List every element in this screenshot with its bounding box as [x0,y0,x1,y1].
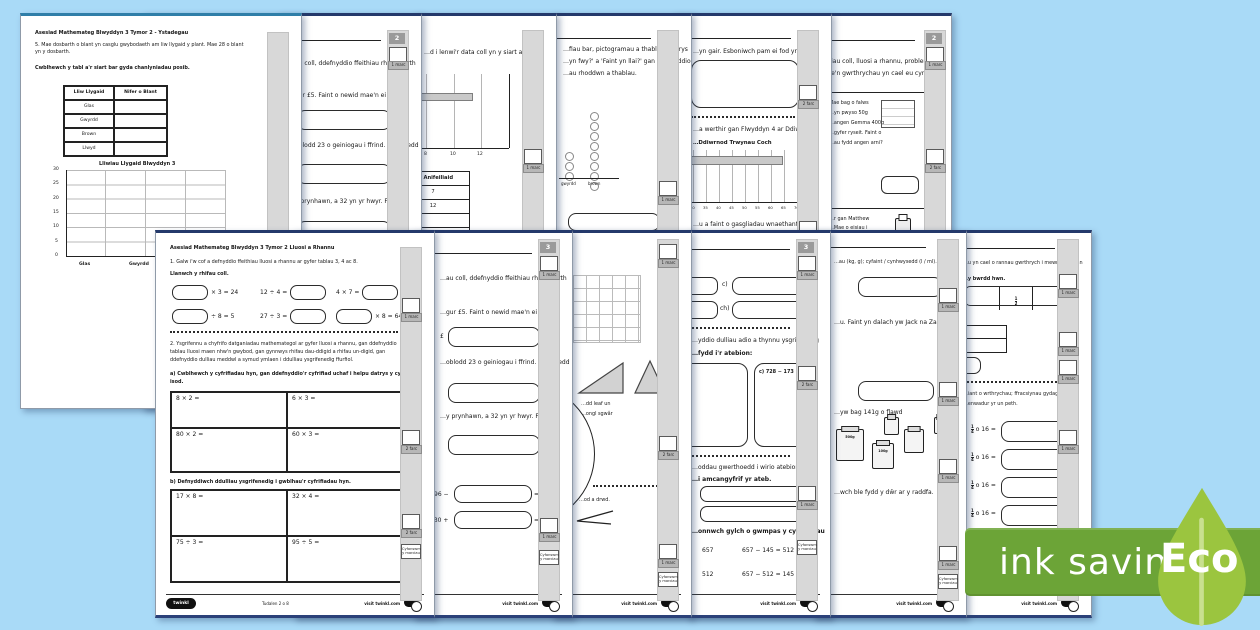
problem-text: Mae bag o falws [829,100,869,106]
eco-stamp-icon [549,601,560,612]
equation-text: 657 [702,547,713,554]
x-tick: 40 [716,205,721,210]
mark-label: 2 farc [797,381,818,390]
mark-label: 1 marc [797,501,818,510]
visit-link-label: visit twinkl.com [1021,601,1057,606]
mark-scheme-margin: 1 marc 1 marc 1 marc 1 marc Cyfanswm y m… [937,239,959,601]
pictogram-baseline [559,178,619,179]
table-cell: Brown [64,128,114,142]
mark-box [799,85,817,100]
total-marks-label: y marciau [939,581,957,585]
question-text: 1. Galw i'w cof a defnyddio ffeithiau ll… [170,259,358,265]
mark-label: 2 farc [401,445,422,454]
x-tick: 65 [781,205,786,210]
table-cell [114,100,167,114]
fraction-question-text: o 16 = [976,454,996,461]
page-number-badge: 3 [540,242,556,253]
equation-text: 657 − 512 = 145 [742,571,794,578]
equation-text: × 8 = 64 [375,313,402,320]
square-grid [573,275,641,343]
table-cell [114,142,167,156]
mark-label: 1 marc [938,397,959,406]
total-marks-label: y marciau [659,579,677,583]
table-cell [114,128,167,142]
visit-link-label: visit twinkl.com [760,601,796,606]
mark-scheme-margin: 3 1 marc 1 marc Cyfanswm y marciau [538,239,560,601]
chart-gridline [481,74,482,148]
mark-box [939,459,957,474]
eco-stamp-icon [1068,601,1079,612]
mark-box [659,181,677,196]
question-fragment: …fiau coll, lluosi a rhannu, problemau [823,58,937,65]
answer-box [568,213,660,231]
working-box-label: c) 728 − 173 = [759,369,800,375]
worksheet-page-multiply-divide: Asesiad Mathemateg Blwyddyn 3 Tymor 2 Ll… [155,230,435,618]
equation-text: 27 ÷ 3 = [260,313,287,320]
mark-label: 1 marc [1058,347,1079,356]
question-fragment: …au rhoddwn a thablau. [563,70,637,77]
pictogram-label: brown [588,181,600,186]
total-marks-box: Cyfanswm y marciau [658,572,678,587]
eco-stamp-icon [807,601,818,612]
pictogram-icon [590,162,599,171]
pictogram-icon [590,142,599,151]
x-tick: 12 [477,152,483,157]
y-tick: 30 [53,167,59,172]
mark-box [540,518,558,533]
dotted-separator [963,381,1061,383]
mark-box [540,256,558,271]
table-cell: 75 ÷ 3 = [171,536,287,582]
dotted-separator [688,455,790,457]
answer-box [858,381,934,401]
pictogram-label: gwyrdd [561,181,576,186]
question-fragment: …i amcangyfrif yr ateb. [692,476,771,483]
y-tick: 10 [53,224,59,229]
mark-box [1059,430,1077,445]
mark-label: 1 marc [523,164,544,173]
mark-box [939,382,957,397]
chart-y-axis [66,170,67,256]
page-header: Asesiad Mathemateg Blwyddyn 3 Tymor 2 Ll… [170,245,334,252]
resource-preview: Asesiad Mathemateg Blwyddyn 3 Tymor 2 - … [0,0,1260,630]
table-cell: 32 × 4 = [287,490,403,536]
equation-text: 657 − 145 = 512 [742,547,794,554]
chart-gridline [426,74,427,148]
total-marks-label: y marciau [402,551,420,555]
mark-label: 1 marc [388,61,409,70]
mark-label: 1 marc [658,196,679,205]
pictogram-icon [565,172,574,181]
equation: 12 ÷ 4 = [260,285,326,300]
mark-label: 2 farc [658,451,679,460]
mark-label: 1 marc [539,271,560,280]
pictogram-icon [590,172,599,181]
calculation-table-b: 17 × 8 = 32 × 4 = 75 ÷ 3 = 95 ÷ 5 = [170,489,404,583]
mark-box [1059,332,1077,347]
instruction-text: Llanwch y rhifau coll. [170,271,229,277]
x-tick: 8 [424,152,427,157]
jar-icon: 100g [872,443,894,469]
eco-stamp-icon [943,601,954,612]
pictogram-column [590,112,599,192]
instruction-text: Cwblhewch y tabl a'r siart bar gyda chan… [35,65,190,71]
fraction-question-text: o 16 = [976,426,996,433]
dotted-separator [691,116,795,118]
equation: ÷ 8 = 5 [172,309,234,324]
mark-box [389,47,407,62]
table-cell: 60 × 3 = [287,428,403,472]
mark-box [402,430,420,445]
question-text: yn y dosbarth. [35,49,70,55]
page-footer: twinkl Tudalen 2 o 8 visit twinkl.com [166,594,424,610]
triangle-shapes [577,357,669,395]
answer-box [448,435,540,455]
equation: 4 × 7 = [336,285,398,300]
mark-label: 1 marc [925,61,946,70]
mark-box [1059,360,1077,375]
page-count-label: Tudalen 2 o 8 [262,601,289,606]
table-cell: 80 × 2 = [171,428,287,472]
instruction-text: b) Defnyddiwch ddulliau ysgrifenedig i g… [170,479,351,485]
fraction-bar: 12 [965,286,1067,306]
mark-scheme-margin: 3 1 marc 2 farc 1 marc Cyfanswm y marcia… [796,239,818,601]
answer-box [454,485,532,503]
y-tick: 20 [53,196,59,201]
question-text: 2. Ysgrifennu a chyfrifo datganiadau mat… [170,341,397,347]
missing-number-box [336,309,372,324]
question-text: 5. Mae dosbarth o blant yn casglu gwybod… [35,42,244,48]
total-marks-box: Cyfanswm y marciau [401,544,421,559]
fraction-question: 14 o 16 = [971,509,996,518]
jar-icon: 500g [836,429,864,461]
fraction-denominator: 4 [971,430,974,434]
missing-number-box [290,285,326,300]
mark-label: 1 marc [1058,445,1079,454]
answer-box-large [691,60,799,108]
mark-box [524,149,542,164]
mark-box [659,436,677,451]
mark-box [939,546,957,561]
pictogram-icon [590,122,599,131]
eye-colour-table: Lliw Llygaid Nifer o Blant Glas Gwyrdd B… [63,85,168,157]
mark-label: 2 farc [401,529,422,538]
right-triangle-icon [579,363,623,393]
answer-box [448,327,540,347]
dotted-separator [593,485,661,487]
problem-text: …angen Gemma 400g [829,120,884,126]
page-header: Asesiad Mathemateg Blwyddyn 3 Tymor 2 - … [35,30,188,37]
x-tick: 55 [755,205,760,210]
question-fragment: …u a faint o gasgliadau wnaethant eu [693,221,807,228]
total-marks-label: Cyfanswm [798,543,817,547]
total-marks-label: Cyfanswm [659,575,678,579]
mark-label: 1 marc [938,303,959,312]
calculation-table-a: 8 × 2 = 6 × 3 = 80 × 2 = 60 × 3 = [170,391,404,473]
total-marks-label: y marciau [798,547,816,551]
table-cell: 95 ÷ 5 = [287,536,403,582]
x-label: Gwyrdd [129,262,149,267]
question-fragment: …iant o wrthrychau; ffracsiynau gydag un [963,391,1066,397]
page-number-badge: 3 [798,242,814,253]
dotted-separator [688,327,790,329]
question-fragment: …au (kg, g); cyfaint / cynhwysedd (l / m… [834,259,937,265]
mark-box [798,486,816,501]
missing-number-box [172,309,208,324]
visit-link-label: visit twinkl.com [896,601,932,606]
question-fragment: …u. Faint yn dalach yw Jack na Zack? [834,319,947,326]
eco-label: Eco [1160,536,1239,582]
equation: 27 ÷ 3 = [260,309,326,324]
mark-scheme-margin [267,32,289,244]
mark-label: 1 marc [938,561,959,570]
y-tick: 0 [55,253,58,258]
mark-box [926,47,944,62]
fraction-bar-cell: 12 [999,287,1032,310]
fraction-denominator: 4 [971,458,974,462]
pictogram-icon [590,112,599,121]
jar-lid-icon [841,426,859,432]
page-number-badge: 2 [389,33,405,44]
visit-link-label: visit twinkl.com [364,601,400,606]
dotted-separator [170,331,398,333]
problem-text: …au fydd angen arni? [829,140,883,146]
answer-box [858,277,942,297]
mark-scheme-margin: 1 marc 2 farc 2 farc Cyfanswm y marciau [400,247,422,601]
answer-box [297,110,391,130]
mark-box [402,514,420,529]
fraction-question: 14 o 16 = [971,481,996,490]
jar-icon [884,417,899,435]
question-fragment: …ongl sgwâr [581,411,613,417]
marshmallow-pack-icon [881,100,915,128]
jar-icon [904,429,924,453]
mark-label: 1 marc [658,259,679,268]
x-tick: 60 [768,205,773,210]
pictogram-icon [565,162,574,171]
pictogram-icon [565,152,574,161]
y-tick: 25 [53,181,59,186]
jar-lid-icon [908,426,921,432]
equation-fragment: 96 − [434,491,449,498]
mark-label: 2 farc [798,100,819,109]
total-marks-label: y marciau [540,557,558,561]
fraction-question: 14 o 16 = [971,453,996,462]
mark-label: 1 marc [1058,375,1079,384]
currency-symbol: £ [440,333,444,340]
mark-scheme-margin: 1 marc 2 farc 1 marc Cyfanswm y marciau [657,239,679,601]
mark-box [798,366,816,381]
mark-box [659,244,677,259]
x-tick: 10 [450,152,456,157]
instruction-text: isod. [170,379,183,385]
jar-lid-icon [876,440,890,446]
table-header-cell: Nifer o Blant [114,86,167,100]
total-marks-box: Cyfanswm y marciau [539,550,559,565]
question-fragment: …yn gair. Esboniwch pam ei fod yn [693,48,798,55]
question-text: tablau lluosi maen nhw'n gwybod, gan gyn… [170,349,385,355]
eco-stamp-icon [668,601,679,612]
twinkl-logo: twinkl [166,598,196,609]
instruction-text: a) Cwblhewch y cyfrifiadau hyn, gan ddef… [170,371,417,377]
fraction-question: 14 o 16 = [971,425,996,434]
jar-weight-label: 500g [837,435,863,439]
total-marks-box: Cyfanswm y marciau [797,540,817,555]
mark-box [798,256,816,271]
mark-box [939,288,957,303]
small-grid [965,325,1007,353]
fraction-question-text: o 16 = [976,482,996,489]
answer-box [297,164,391,184]
mark-label: 1 marc [658,559,679,568]
total-marks-label: Cyfanswm [402,547,421,551]
eco-stamp-icon [411,601,422,612]
equation: × 3 = 24 [172,285,238,300]
mark-box [402,298,420,313]
question-fragment: …oddau gwerthoedd i wirio atebion. [692,464,801,471]
equation-text: 512 [702,571,713,578]
mark-label: 1 marc [938,474,959,483]
table-cell: Llwyd [64,142,114,156]
fraction-bar-cell [966,287,999,310]
y-tick: 5 [55,239,58,244]
angle-drawing [575,507,617,527]
question-fragment: …enwadur yr un peth. [963,401,1018,407]
page-number-badge: 2 [926,33,942,44]
question-fragment: …a werthir gan Flwyddyn 4 ar Ddiwrnod [693,126,814,133]
answer-box [448,383,540,403]
equation: × 8 = 64 [336,309,402,324]
mark-box [1059,274,1077,289]
fraction-denominator: 2 [1015,302,1018,306]
problem-text: …gyfer ryseit. Faint o [829,130,881,136]
mark-label: 1 marc [1058,289,1079,298]
x-tick: 45 [729,205,734,210]
table-cell: Gwyrdd [64,114,114,128]
x-tick: 50 [742,205,747,210]
chart-frame [509,74,510,148]
question-text: ddefnyddio dulliau meddwl a symud ymlaen… [170,357,353,363]
total-marks-label: Cyfanswm [540,553,559,557]
table-header-cell: Lliw Llygaid [64,86,114,100]
table-cell: 6 × 3 = [287,392,403,428]
x-label: Glas [79,262,90,267]
table-cell: 17 × 8 = [171,490,287,536]
x-tick: 35 [703,205,708,210]
table-cell: 8 × 2 = [171,392,287,428]
pictogram-icon [590,152,599,161]
question-fragment: …od a drwd. [579,497,610,503]
problem-text: …yn pwyso 50g [829,110,868,116]
equation-text: 12 ÷ 4 = [260,289,287,296]
problem-text: …r gan Matthew [829,216,869,222]
jar-weight-label: 100g [873,449,893,453]
table-cell: Glas [64,100,114,114]
total-marks-label: Cyfanswm [939,577,958,581]
pictogram-icon [590,132,599,141]
missing-number-box [362,285,398,300]
missing-number-box [172,285,208,300]
question-fragment: …y bwrdd hwn. [963,276,1005,282]
table-cell [114,114,167,128]
equation-text: ÷ 8 = 5 [211,313,234,320]
chart-title: …Ddiwrnod Trwynau Coch [693,140,772,147]
mark-box [659,544,677,559]
y-tick: 15 [53,210,59,215]
chart-gridline [454,74,455,148]
missing-number-box [290,309,326,324]
item-label: ch) [720,305,729,312]
jar-lid-icon [887,414,897,420]
answer-box [454,511,532,529]
fraction-question-text: o 16 = [976,510,996,517]
fraction-denominator: 4 [971,514,974,518]
visit-link-label: visit twinkl.com [621,601,657,606]
question-fragment: …wch ble fydd y dŵr ar y raddfa. [834,489,934,496]
chart-gridline [784,150,785,202]
bottle-cap-icon [899,214,908,221]
visit-link-label: visit twinkl.com [502,601,538,606]
equation-text: 4 × 7 = [336,289,359,296]
equation-text: × 3 = 24 [211,289,238,296]
answer-box [881,176,919,194]
fraction-denominator: 4 [971,486,974,490]
item-label: c) [722,281,728,288]
mark-label: 1 marc [401,313,422,322]
chart-title: Lliwiau Llygaid Blwyddyn 3 [99,161,175,168]
total-marks-box: Cyfanswm y marciau [938,574,958,589]
mark-label: 2 farc [925,164,946,173]
question-fragment: …dd leaf un [581,401,611,407]
small-grid-cell [966,326,1006,339]
mark-box [926,149,944,164]
mark-label: 1 marc [797,271,818,280]
mark-label: 1 marc [539,533,560,542]
question-fragment: …fydd i'r atebion: [692,350,752,357]
